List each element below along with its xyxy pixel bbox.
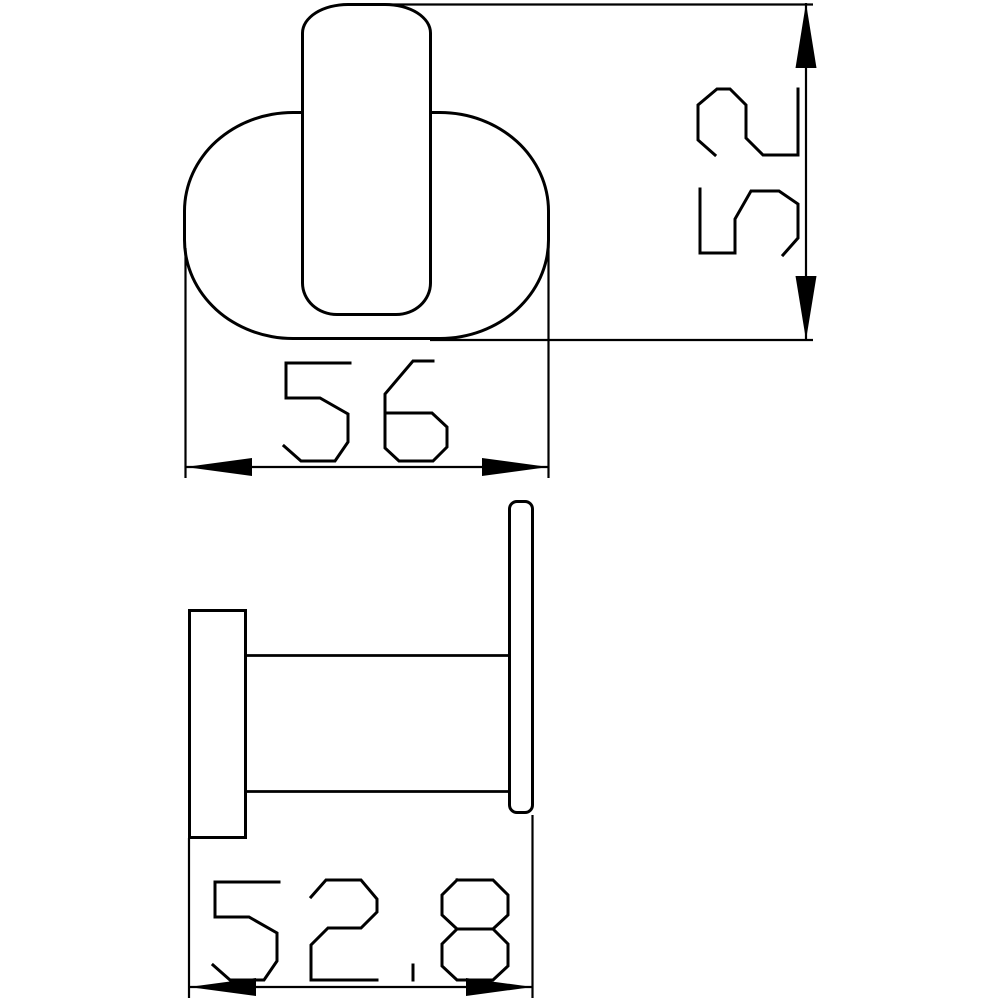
side-depth-dimension: [189, 815, 533, 998]
dimension-digit-glyph: [700, 189, 798, 255]
arrowhead-down: [796, 276, 817, 340]
dimension-digit-glyph: [213, 882, 279, 980]
front-width-dimension-label: [284, 361, 447, 461]
dimension-digit-glyph: [311, 880, 377, 980]
dimension-digit-glyph: [284, 363, 350, 461]
arrowhead-right: [482, 458, 549, 476]
arrowhead-up: [796, 3, 817, 68]
hook-post-outline: [246, 656, 509, 792]
arrowhead-left: [186, 458, 253, 476]
front-width-dimension: [186, 233, 549, 478]
front-height-dimension: [352, 3, 817, 340]
dimension-digit-glyph: [385, 361, 447, 461]
side-depth-dimension-label: [213, 880, 508, 980]
dimension-overlay: [0, 0, 1000, 1000]
dimension-digit-glyph: [442, 880, 508, 980]
dimension-digit-glyph: [698, 89, 798, 155]
front-height-dimension-label: [698, 89, 798, 255]
technical-drawing-canvas: [0, 0, 1000, 1000]
